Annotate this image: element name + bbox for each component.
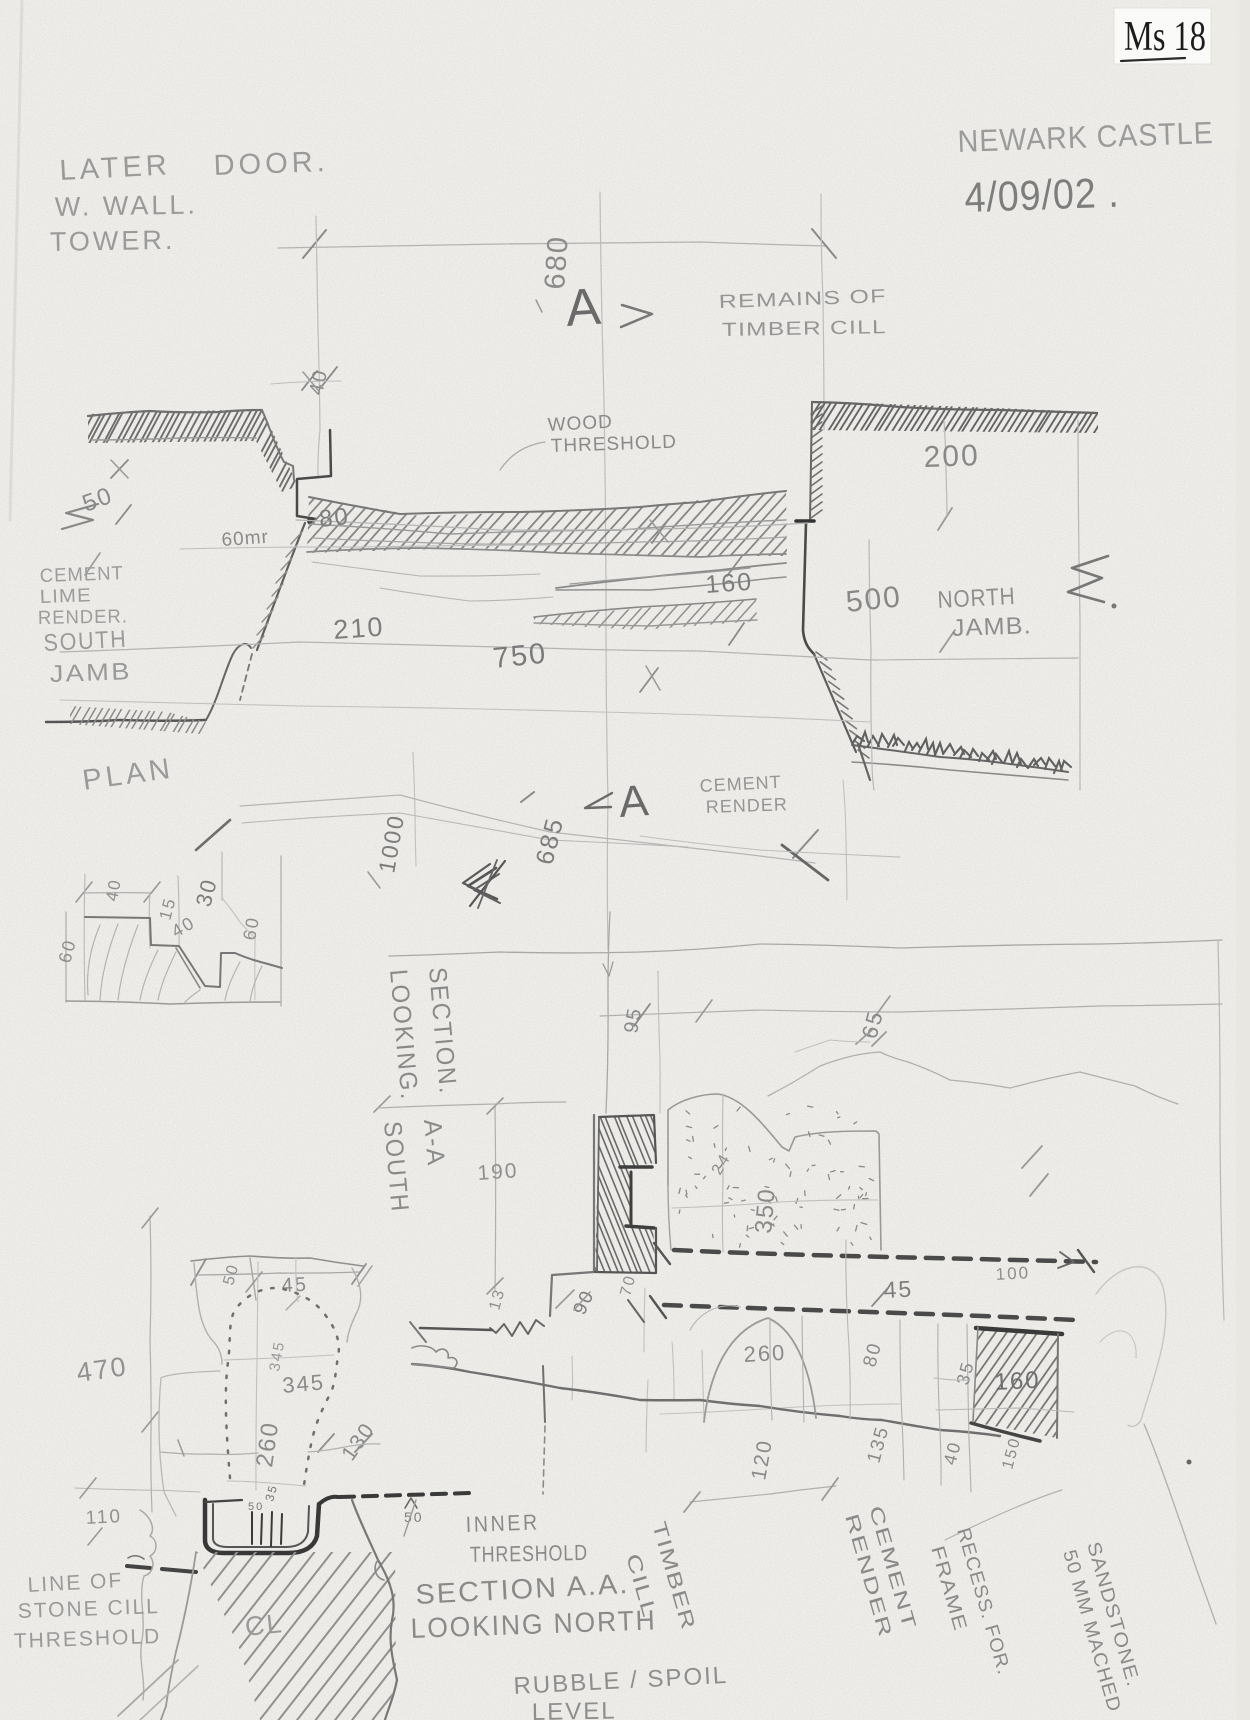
svg-text:4/09/02 .: 4/09/02 .	[964, 169, 1121, 221]
svg-text:INNER: INNER	[465, 1509, 540, 1537]
svg-text:LEVEL: LEVEL	[532, 1698, 617, 1720]
svg-text:345: 345	[281, 1369, 326, 1398]
svg-text:W. WALL.: W. WALL.	[55, 190, 199, 222]
svg-text:JAMB.: JAMB.	[951, 612, 1032, 642]
svg-text:A: A	[564, 278, 603, 338]
svg-text:THRESHOLD: THRESHOLD	[550, 432, 677, 457]
svg-text:60mr: 60mr	[221, 527, 270, 551]
svg-text:CEMENT: CEMENT	[699, 772, 782, 796]
svg-text:350: 350	[750, 1186, 781, 1234]
svg-text:CEMENT: CEMENT	[39, 563, 124, 587]
svg-text:750: 750	[491, 637, 548, 675]
svg-text:50: 50	[248, 1501, 264, 1513]
svg-text:100: 100	[995, 1263, 1030, 1284]
svg-text:60: 60	[239, 915, 263, 942]
svg-text:SOUTH: SOUTH	[43, 626, 128, 657]
svg-text:A: A	[617, 776, 650, 827]
svg-text:RENDER: RENDER	[705, 794, 788, 817]
svg-text:260: 260	[743, 1340, 787, 1367]
svg-text:200: 200	[923, 439, 980, 474]
svg-text:LIME: LIME	[39, 585, 92, 608]
svg-text:TOWER.: TOWER.	[50, 225, 176, 257]
svg-text:160: 160	[704, 568, 754, 599]
svg-text:THRESHOLD: THRESHOLD	[470, 1540, 588, 1567]
svg-text:190: 190	[477, 1159, 520, 1185]
svg-text:40: 40	[102, 877, 125, 903]
svg-text:50: 50	[404, 1509, 424, 1525]
svg-text:500: 500	[844, 580, 903, 619]
svg-text:WOOD: WOOD	[547, 412, 613, 436]
svg-text:TIMBER CILL: TIMBER CILL	[722, 317, 887, 341]
svg-text:110: 110	[85, 1506, 122, 1529]
svg-text:DOOR.: DOOR.	[213, 146, 329, 182]
svg-text:A-A: A-A	[418, 1118, 450, 1168]
svg-text:80: 80	[318, 503, 351, 533]
svg-text:NORTH: NORTH	[937, 583, 1016, 614]
svg-text:Ms 18: Ms 18	[1124, 14, 1206, 60]
svg-text:95: 95	[620, 1005, 646, 1035]
svg-text:CL: CL	[243, 1608, 284, 1642]
svg-text:210: 210	[332, 611, 385, 644]
svg-text:JAMB: JAMB	[49, 658, 132, 688]
svg-text:LATER: LATER	[59, 149, 172, 187]
svg-text:160: 160	[994, 1367, 1041, 1396]
